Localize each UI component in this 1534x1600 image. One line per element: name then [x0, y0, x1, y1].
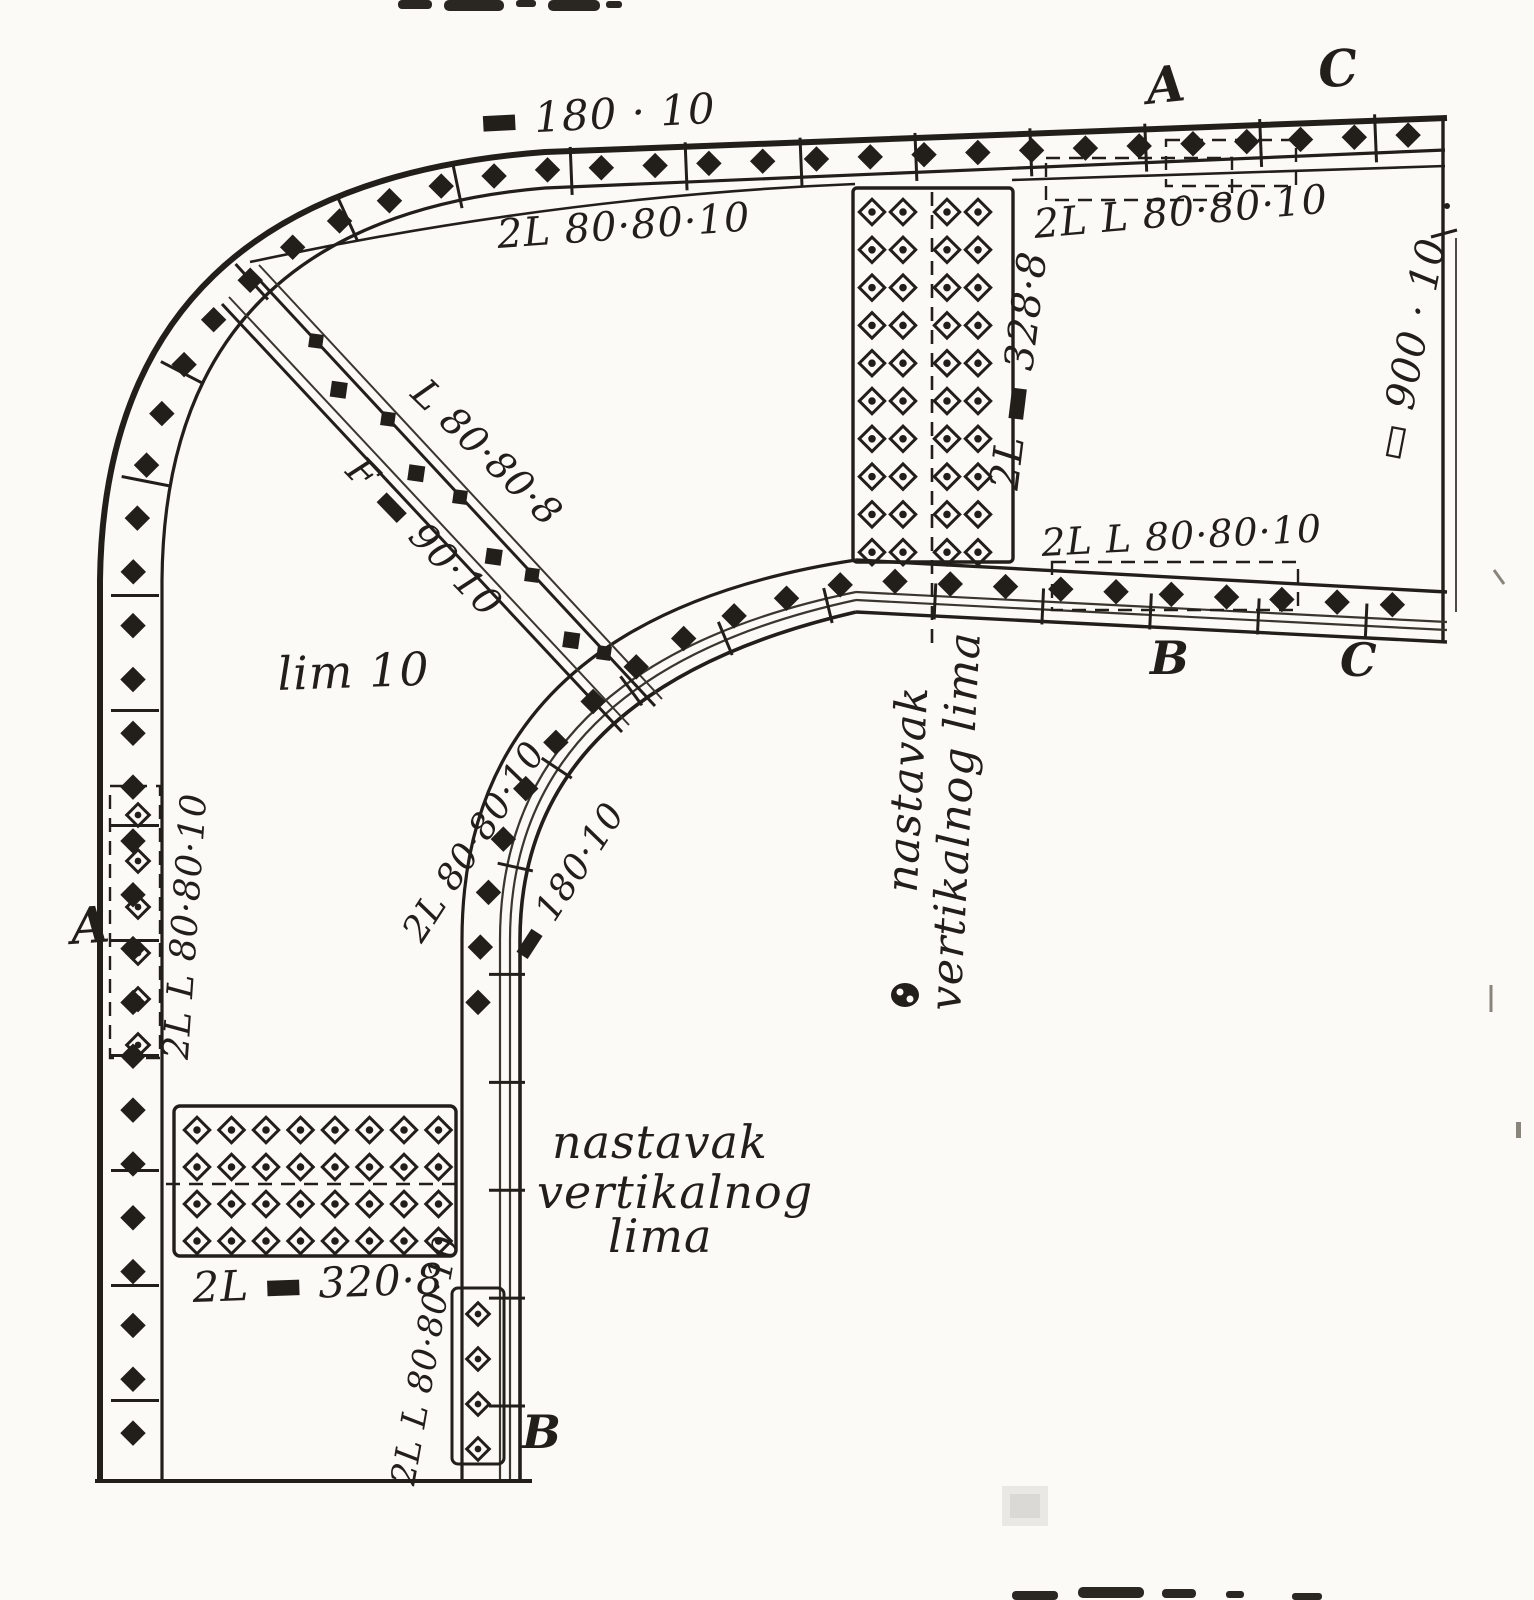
rivet: [120, 774, 145, 799]
rivet: [426, 1191, 451, 1216]
rivet: [965, 313, 990, 338]
rivet: [934, 388, 959, 413]
rivet: [1395, 122, 1420, 147]
cropped-caption-fragment: [398, 0, 432, 9]
rivet-tick: [570, 147, 572, 195]
rivet: [426, 1154, 451, 1179]
inner-web-line-2: [510, 600, 856, 1480]
cropped-caption-fragment: [444, 0, 504, 11]
rivet: [330, 381, 348, 399]
rivet: [253, 1117, 278, 1142]
rivet: [1324, 589, 1349, 614]
section-letter-left-a: A: [65, 894, 112, 956]
rivet: [219, 1117, 244, 1142]
rivet: [253, 1154, 278, 1179]
rivet: [357, 1154, 382, 1179]
rivet: [253, 1191, 278, 1216]
rivet: [934, 502, 959, 527]
rivet: [965, 199, 990, 224]
inner-flange-outer-edge: [520, 612, 856, 1480]
note-vertical-splice-line3: lima: [608, 1209, 712, 1263]
rivet: [391, 1191, 416, 1216]
rivet-tick: [1030, 128, 1032, 176]
cropped-caption-fragment: [1162, 1589, 1196, 1598]
rivet: [589, 155, 614, 180]
labels-layer: ▬ 180 · 10 2L 80·80·10 2L L 80·80·10 2L …: [65, 37, 1456, 1489]
rivet: [562, 631, 580, 649]
rivet-tick: [685, 142, 687, 190]
rivet: [859, 388, 884, 413]
rivet: [535, 157, 560, 182]
rivet: [125, 505, 150, 530]
rivet: [1159, 582, 1184, 607]
ink-blot: [891, 983, 919, 1007]
label-top-chord-angles: 2L 80·80·10: [494, 194, 751, 258]
rivet: [1269, 587, 1294, 612]
rivet: [219, 1228, 244, 1253]
cropped-caption-fragment: [548, 0, 600, 11]
rivet: [357, 1191, 382, 1216]
rivet: [965, 237, 990, 262]
rivet: [524, 567, 540, 583]
rivet: [127, 804, 150, 827]
rivet: [859, 275, 884, 300]
rivet: [120, 1151, 145, 1176]
section-letter-mid-b: B: [1148, 631, 1189, 685]
label-inner-curve-plate: ▬ 180·10: [501, 795, 633, 968]
rivet: [890, 426, 915, 451]
rivet: [859, 199, 884, 224]
rivet: [481, 163, 506, 188]
rivet: [120, 882, 145, 907]
rivet: [938, 571, 963, 596]
rivet: [859, 350, 884, 375]
cropped-caption-fragment: [1226, 1591, 1244, 1598]
section-letter-bottom-b: B: [520, 1405, 561, 1459]
rivet: [467, 1438, 490, 1461]
rivet: [120, 1205, 145, 1230]
rivet: [184, 1228, 209, 1253]
rivet: [1214, 584, 1239, 609]
rivet-tick: [915, 133, 917, 181]
rivet: [127, 850, 150, 873]
rivet: [380, 411, 396, 427]
rivet: [120, 613, 145, 638]
rivet: [596, 645, 612, 661]
rivet: [750, 148, 775, 173]
rivet: [184, 1154, 209, 1179]
rivet: [859, 426, 884, 451]
rivet: [120, 828, 145, 853]
rivet: [804, 146, 829, 171]
rivet-tick: [1375, 114, 1377, 162]
rivet: [467, 1303, 490, 1326]
rivet: [219, 1191, 244, 1216]
section-letter-top-c: C: [1315, 37, 1361, 100]
scanned-drawing-page: ▬ 180 · 10 2L 80·80·10 2L L 80·80·10 2L …: [0, 0, 1534, 1600]
rivet: [890, 275, 915, 300]
frame-knee-joint-drawing: ▬ 180 · 10 2L 80·80·10 2L L 80·80·10 2L …: [0, 0, 1534, 1600]
rivet: [465, 990, 490, 1015]
rivet: [452, 489, 468, 505]
rivet: [149, 401, 174, 426]
rivet: [859, 502, 884, 527]
rivet: [671, 626, 696, 651]
rivet: [201, 307, 226, 332]
rivet: [934, 350, 959, 375]
dimension-dot: [1444, 203, 1450, 209]
rivet: [391, 1228, 416, 1253]
rivet: [543, 730, 568, 755]
rivet: [890, 199, 915, 224]
cropped-caption-fragment: [1078, 1587, 1144, 1598]
rivet: [890, 464, 915, 489]
label-left-member-angles: 2L L 80·80·10: [156, 792, 216, 1062]
scan-artifact: [1494, 570, 1504, 584]
rivet-tick: [934, 583, 936, 619]
rivet: [934, 313, 959, 338]
top-chord-angle-line-right: [1012, 166, 1445, 180]
rivet-tick: [1150, 593, 1152, 629]
rivet: [467, 1348, 490, 1371]
rivet: [468, 934, 493, 959]
rivet: [308, 333, 324, 349]
rivet: [288, 1154, 313, 1179]
rivet: [859, 313, 884, 338]
label-vertical-splice-plates: 2L ▬ 328·8: [982, 249, 1057, 494]
rivet: [322, 1191, 347, 1216]
rivet: [1048, 576, 1073, 601]
rivet: [120, 1420, 145, 1445]
rivet: [1380, 592, 1405, 617]
rivet: [1180, 131, 1205, 156]
rivet: [288, 1117, 313, 1142]
rivet: [377, 188, 402, 213]
rivet: [882, 569, 907, 594]
rivet: [322, 1154, 347, 1179]
rivet: [1126, 133, 1151, 158]
rivet: [120, 1259, 145, 1284]
rivet: [965, 388, 990, 413]
rivet: [322, 1117, 347, 1142]
cropped-caption-fragment: [606, 1, 622, 8]
rivet: [121, 559, 146, 584]
rivet: [890, 502, 915, 527]
ink-blot-hole: [907, 996, 914, 1003]
rivet: [1342, 125, 1367, 150]
rivet: [219, 1154, 244, 1179]
rivet: [965, 502, 990, 527]
rivet: [934, 464, 959, 489]
rivet: [858, 144, 883, 169]
rivet: [859, 464, 884, 489]
rivet: [934, 426, 959, 451]
rivet: [965, 275, 990, 300]
rivet-tick: [1042, 588, 1044, 624]
rivet: [965, 140, 990, 165]
label-web-plate: lim 10: [276, 642, 430, 701]
note-vertical-splice-line1: nastavak: [552, 1115, 768, 1169]
rivet: [467, 1393, 490, 1416]
rivet: [288, 1191, 313, 1216]
scan-artifact: [1516, 1122, 1521, 1138]
rivet: [696, 151, 721, 176]
section-letter-top-a: A: [1139, 53, 1188, 116]
rivet: [859, 237, 884, 262]
rivet: [357, 1117, 382, 1142]
rivet: [426, 1117, 451, 1142]
rivet: [890, 237, 915, 262]
rivet: [253, 1228, 278, 1253]
rivet-tick: [1257, 598, 1259, 634]
rivet: [1103, 579, 1128, 604]
rivet: [965, 350, 990, 375]
rivet: [120, 667, 145, 692]
rivet: [134, 452, 159, 477]
inner-web-line-1: [500, 592, 856, 1480]
section-letter-mid-c: C: [1340, 633, 1377, 687]
rivet: [934, 275, 959, 300]
cropped-caption-fragment: [1012, 1591, 1058, 1600]
label-bottom-splice-plates: 2L ▬ 320·8: [191, 1254, 445, 1312]
rivet: [184, 1191, 209, 1216]
rivet: [993, 574, 1018, 599]
rivet: [288, 1228, 313, 1253]
rivet-tick: [1145, 124, 1147, 172]
rivet: [890, 350, 915, 375]
rivet: [120, 1367, 145, 1392]
rivet: [322, 1228, 347, 1253]
rivet: [184, 1117, 209, 1142]
rivet: [428, 173, 453, 198]
rivet: [934, 237, 959, 262]
label-top-right-angles: 2L L 80·80·10: [1031, 176, 1330, 248]
rivet-tick: [122, 476, 169, 485]
rivet: [120, 721, 145, 746]
label-top-flange-plate: ▬ 180 · 10: [478, 84, 717, 145]
rivet-tick: [800, 138, 802, 186]
rivet: [120, 1097, 145, 1122]
rivet: [407, 464, 425, 482]
diagonal-angle-line-1b: [259, 265, 662, 699]
rivet: [120, 1313, 145, 1338]
rivet: [1288, 127, 1313, 152]
cropped-caption-fragment: [516, 0, 536, 7]
rivet: [721, 603, 746, 628]
rivet: [890, 313, 915, 338]
rivet: [391, 1117, 416, 1142]
rivet: [934, 199, 959, 224]
rivet: [476, 880, 501, 905]
rivet: [890, 388, 915, 413]
rivet: [1234, 129, 1259, 154]
ink-blot-hole: [897, 989, 904, 996]
scan-artifact: [1010, 1494, 1040, 1518]
rivet-tick: [1260, 119, 1262, 167]
label-mid-chord-angles: 2L L 80·80·10: [1039, 506, 1323, 565]
cropped-caption-fragment: [1292, 1593, 1322, 1600]
rivet: [357, 1228, 382, 1253]
rivet: [485, 548, 503, 566]
rivet: [642, 153, 667, 178]
rivet: [391, 1154, 416, 1179]
